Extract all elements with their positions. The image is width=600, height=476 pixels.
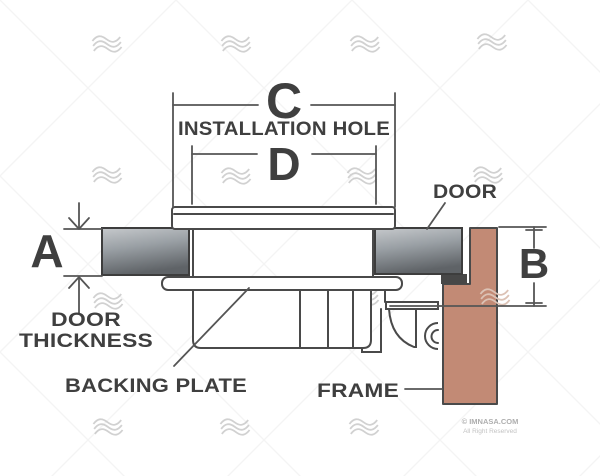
installation-hole-label: INSTALLATION HOLE [178,119,390,140]
door-cross-section-left [102,228,189,275]
frame-label: FRAME [317,381,399,402]
door-thickness-label-line1: DOOR [51,310,121,331]
dim-b-label: B [519,240,549,287]
copyright-line2: All Right Reserved [463,428,517,435]
door-thickness-label-line2: THICKNESS [19,331,153,352]
diagram-canvas: C INSTALLATION HOLE D A DOOR THICKNESS B… [0,0,600,476]
latch-body [193,290,381,352]
diagonal-watermark-pattern [0,0,600,476]
copyright-line1: © IMNASA.COM [462,417,519,426]
dim-a-label: A [30,225,63,277]
backing-plate-label: BACKING PLATE [65,376,247,397]
latch-flange [172,207,395,229]
dim-d-label: D [267,138,300,190]
door-edge-band [441,274,467,284]
door-label: DOOR [433,182,497,203]
backing-plate-bar [162,277,402,290]
installation-diagram: C INSTALLATION HOLE D A DOOR THICKNESS B… [0,0,600,476]
door-cross-section-right [375,228,462,274]
